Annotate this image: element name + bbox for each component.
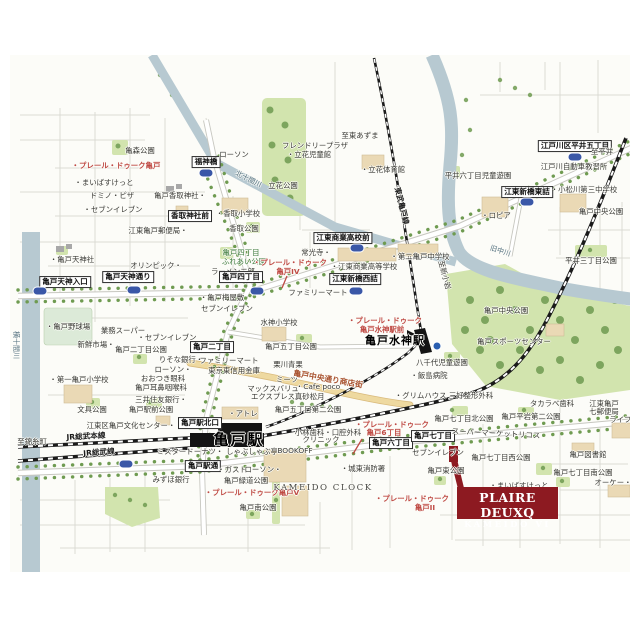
intersection-label: 江東新橋西詰 — [329, 273, 381, 285]
map-poi-label: クリニック — [303, 436, 340, 444]
map-poi-label: 水神小学校 — [261, 319, 298, 327]
map-poi-label: 香取公園 — [229, 225, 259, 233]
route-shield-icon — [521, 199, 534, 206]
map-poi-label: ミスタードーナツ・ — [157, 448, 224, 456]
map-poi-label: 至錦糸町 — [17, 438, 47, 446]
route-shield-icon — [350, 288, 363, 295]
map-poi-label: ・まいばすけっと — [74, 179, 133, 187]
map-poi-label: 至東あずま — [342, 132, 379, 140]
kameido-chuo-park-label: 亀戸中央公園 — [484, 307, 528, 315]
map-poi-label: ・亀戸梅屋敷 — [200, 294, 244, 302]
intersection-label: 亀戸二丁目 — [190, 341, 234, 353]
map-poi-label: ・第一亀戸小学校 — [49, 376, 108, 384]
map-poi-label: ・Cafe poco — [296, 383, 340, 391]
route-shield-icon — [128, 287, 141, 294]
map-poi-label: ・小松川第三中学校 — [551, 186, 618, 194]
intersection-label: 亀戸天神通り — [102, 271, 154, 283]
map-poi-label: ファミリーマート — [199, 357, 258, 365]
poi-label-red: 亀戸II — [415, 504, 435, 512]
map-canvas: 亀森公園・プレール・ドゥーク亀戸・まいばすけっとドミノ・ピザ・セブンイレブン福神… — [10, 55, 630, 572]
route-shield-icon — [351, 245, 364, 252]
map-poi-label: ・立花体育館 — [361, 166, 405, 174]
map-poi-label: ライフ・ — [609, 416, 630, 424]
map-poi-label: ・立花児童館 — [287, 151, 331, 159]
map-poi-label: 栗川青果 — [273, 361, 303, 369]
map-poi-label: 亀森公園 — [125, 147, 155, 155]
brand-box: PLAIRE DEUXQ KAMEIDO VI — [457, 487, 558, 519]
map-poi-label: 平井三丁目公園 — [565, 257, 617, 265]
plaire-deuxq-kameido-label: ・プレール・ドゥーク亀戸 — [72, 162, 161, 170]
map-poi-label: 亀戸七丁目南公園 — [553, 469, 612, 477]
map-poi-label: 亀戸東公園 — [428, 467, 465, 475]
map-poi-label: ローソン — [219, 151, 249, 159]
map-poi-label: ファミリーマート — [288, 289, 347, 297]
map-poi-label: ・ロピア — [481, 212, 511, 220]
map-page: 亀森公園・プレール・ドゥーク亀戸・まいばすけっとドミノ・ピザ・セブンイレブン福神… — [0, 0, 640, 640]
map-poi-label: BOOKOFF — [277, 447, 312, 455]
tobu-logo-icon — [434, 343, 441, 350]
map-poi-label: 亀戸南公園 — [240, 504, 277, 512]
map-poi-label: 亀戸香取神社・ — [154, 192, 206, 200]
map-poi-label: オーケー・ — [595, 479, 630, 487]
route-shield-icon — [569, 154, 582, 161]
kameido-suijin-station-label: 亀戸水神駅 — [365, 335, 425, 347]
map-poi-label: ・セブンイレブン — [83, 206, 142, 214]
map-poi-label: セブンイレブン — [412, 449, 464, 457]
poi-label-red: ・プレール・ドゥーク — [375, 495, 449, 503]
map-poi-label: ・飯島病院 — [411, 372, 448, 380]
route-shield-icon — [120, 461, 133, 468]
map-poi-label: 亀戸駅前公園 — [129, 406, 173, 414]
map-poi-label: みずほ銀行 — [153, 476, 190, 484]
map-poi-label: 亀戸緑道公園 — [224, 477, 268, 485]
map-poi-label: ・アトレ — [228, 410, 258, 418]
map-poi-label: ・真砂松月 — [288, 393, 325, 401]
intersection-label: 香取神社前 — [168, 210, 212, 222]
route-shield-icon — [34, 288, 47, 295]
map-poi-label: 常光寺・ — [301, 249, 331, 257]
map-poi-label: 亀戸平岩第二公園 — [501, 413, 560, 421]
poi-label-red: 亀戸IV — [276, 268, 299, 276]
route-shield-icon — [251, 288, 264, 295]
map-poi-label: 江東亀戸郵便局・ — [128, 227, 187, 235]
map-poi-label: 亀戸中央公園 — [579, 208, 623, 216]
map-poi-label: ・セブンイレブン — [137, 334, 196, 342]
poi-label-red: 亀戸6丁目 — [367, 429, 402, 437]
map-poi-label: 亀戸スポーツセンター — [477, 338, 551, 346]
fukujinbashi-label: 福神橋 — [192, 156, 221, 168]
intersection-label: 亀戸駅通 — [185, 460, 221, 472]
map-poi-label: 江戸川自動車教習所 — [541, 163, 608, 171]
map-poi-label: ドミノ・ピザ — [90, 192, 134, 200]
map-poi-label: 亀戸五丁目第二公園 — [275, 406, 342, 414]
intersection-label: 亀戸六丁目 — [369, 437, 413, 449]
map-poi-label: ・亀戸野球場 — [46, 323, 90, 331]
kameido-clock-label: KAMEIDO CLOCK — [273, 484, 372, 494]
map-poi-label: ・江東商業高等学校 — [331, 263, 398, 271]
intersection-label: 亀戸七丁目 — [411, 430, 455, 442]
map-poi-label: 亀戸二丁目公園 — [115, 346, 167, 354]
map-poi-label: りそな銀行・ — [159, 356, 203, 364]
route-shield-icon — [200, 170, 213, 177]
map-poi-label: 江東区亀戸文化センター・ — [87, 422, 176, 430]
map-poi-label: ローソン・ — [245, 466, 282, 474]
map-poi-label: ・城東消防署 — [341, 465, 385, 473]
map-poi-label: 至平井 — [591, 148, 613, 156]
map-poi-label: 新鮮市場・ — [78, 341, 115, 349]
map-poi-label: 東京東信用金庫 — [208, 367, 260, 375]
intersection-label: 亀戸四丁目 — [219, 271, 263, 283]
map-poi-label: 亀戸五丁目公園 — [265, 343, 317, 351]
intersection-label: 江東新橋東詰 — [501, 186, 553, 198]
map-poi-label: 立花公園 — [268, 182, 298, 190]
intersection-label: 亀戸駅北口 — [178, 417, 222, 429]
map-poi-label: 三井住友銀行・ — [135, 396, 187, 404]
map-poi-label: ・ガスト — [217, 466, 247, 474]
map-poi-label: タカラベ歯科 — [530, 400, 574, 408]
map-poi-label: 亀戸七丁目北公園 — [434, 415, 493, 423]
map-poi-label: ・亀戸天神社 — [50, 256, 94, 264]
intersection-label: 亀戸天神入口 — [39, 276, 91, 288]
map-poi-label: 亀戸七丁目西公園 — [471, 454, 530, 462]
brand-subtitle: KAMEIDO VI — [457, 520, 558, 530]
map-poi-label: ・香取小学校 — [216, 210, 260, 218]
map-poi-label: オリンピック・ — [130, 262, 182, 270]
map-poi-label: 亀戸図書館 — [570, 451, 607, 459]
map-poi-label: しゃぶしゃぶ亭 — [226, 448, 278, 456]
yokojukken-river-label: 横十間川 — [11, 331, 19, 359]
map-poi-label: 文具公園 — [77, 406, 107, 414]
intersection-label: 江東商業高校前 — [313, 232, 372, 244]
map-poi-label: 八千代児童遊園 — [416, 359, 468, 367]
map-poi-label: セブンイレブン — [201, 305, 253, 313]
map-poi-label: ・グリムハウス 三好整形外科 — [395, 392, 493, 400]
brand-title: PLAIRE DEUXQ — [457, 490, 558, 520]
map-poi-label: 亀戸耳鼻咽喉科 — [135, 384, 187, 392]
map-poi-label: 平井六丁目児童遊園 — [445, 172, 512, 180]
